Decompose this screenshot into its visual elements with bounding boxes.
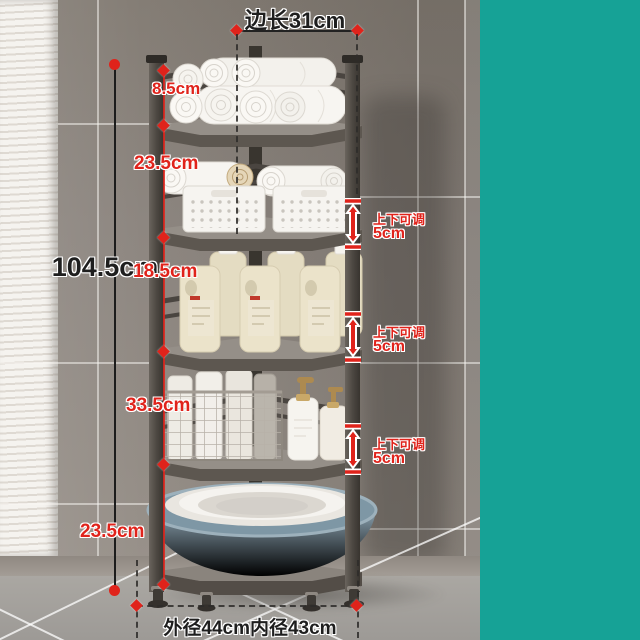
- basin: [148, 484, 376, 576]
- segment-label-1: 8.5cm: [152, 79, 200, 99]
- product-infographic: 边长31cm 104.5cm 8.5cm 23.5cm 18.5cm 33.5c…: [0, 0, 640, 640]
- measure-dot: [109, 585, 120, 596]
- adjustable-value: 5cm: [373, 338, 405, 356]
- segment-label-3: 18.5cm: [133, 261, 197, 283]
- segment-label-2: 23.5cm: [134, 153, 198, 175]
- bottom-diameter-label: 外径44cm内径43cm: [140, 613, 360, 640]
- product-photo: 边长31cm 104.5cm 8.5cm 23.5cm 18.5cm 33.5c…: [0, 0, 480, 640]
- detergent-bottles: [180, 243, 362, 352]
- updown-arrow-icon: [342, 423, 364, 475]
- adjustable-value: 5cm: [373, 225, 405, 243]
- adjustable-value: 5cm: [373, 450, 405, 468]
- height-line: [114, 66, 116, 590]
- updown-arrow-icon: [342, 311, 364, 363]
- info-panel: 5 层 边长：31cm 高：104.5cm 优选材质 加高护栏 承重力强 可调脚…: [480, 0, 640, 640]
- adjustable-annotation: 上下可调 5cm: [342, 423, 446, 481]
- segment-label-5: 23.5cm: [80, 521, 144, 543]
- segment-label-4: 33.5cm: [126, 395, 190, 417]
- dashed-guide: [236, 34, 238, 234]
- bottom-measure-line: [137, 605, 357, 607]
- updown-arrow-icon: [342, 198, 364, 250]
- measure-dot: [109, 59, 120, 70]
- adjustable-annotation: 上下可调 5cm: [342, 198, 446, 256]
- top-width-line: [237, 30, 358, 32]
- adjustable-annotation: 上下可调 5cm: [342, 311, 446, 369]
- dashed-guide: [356, 34, 358, 194]
- segment-line: [163, 70, 165, 585]
